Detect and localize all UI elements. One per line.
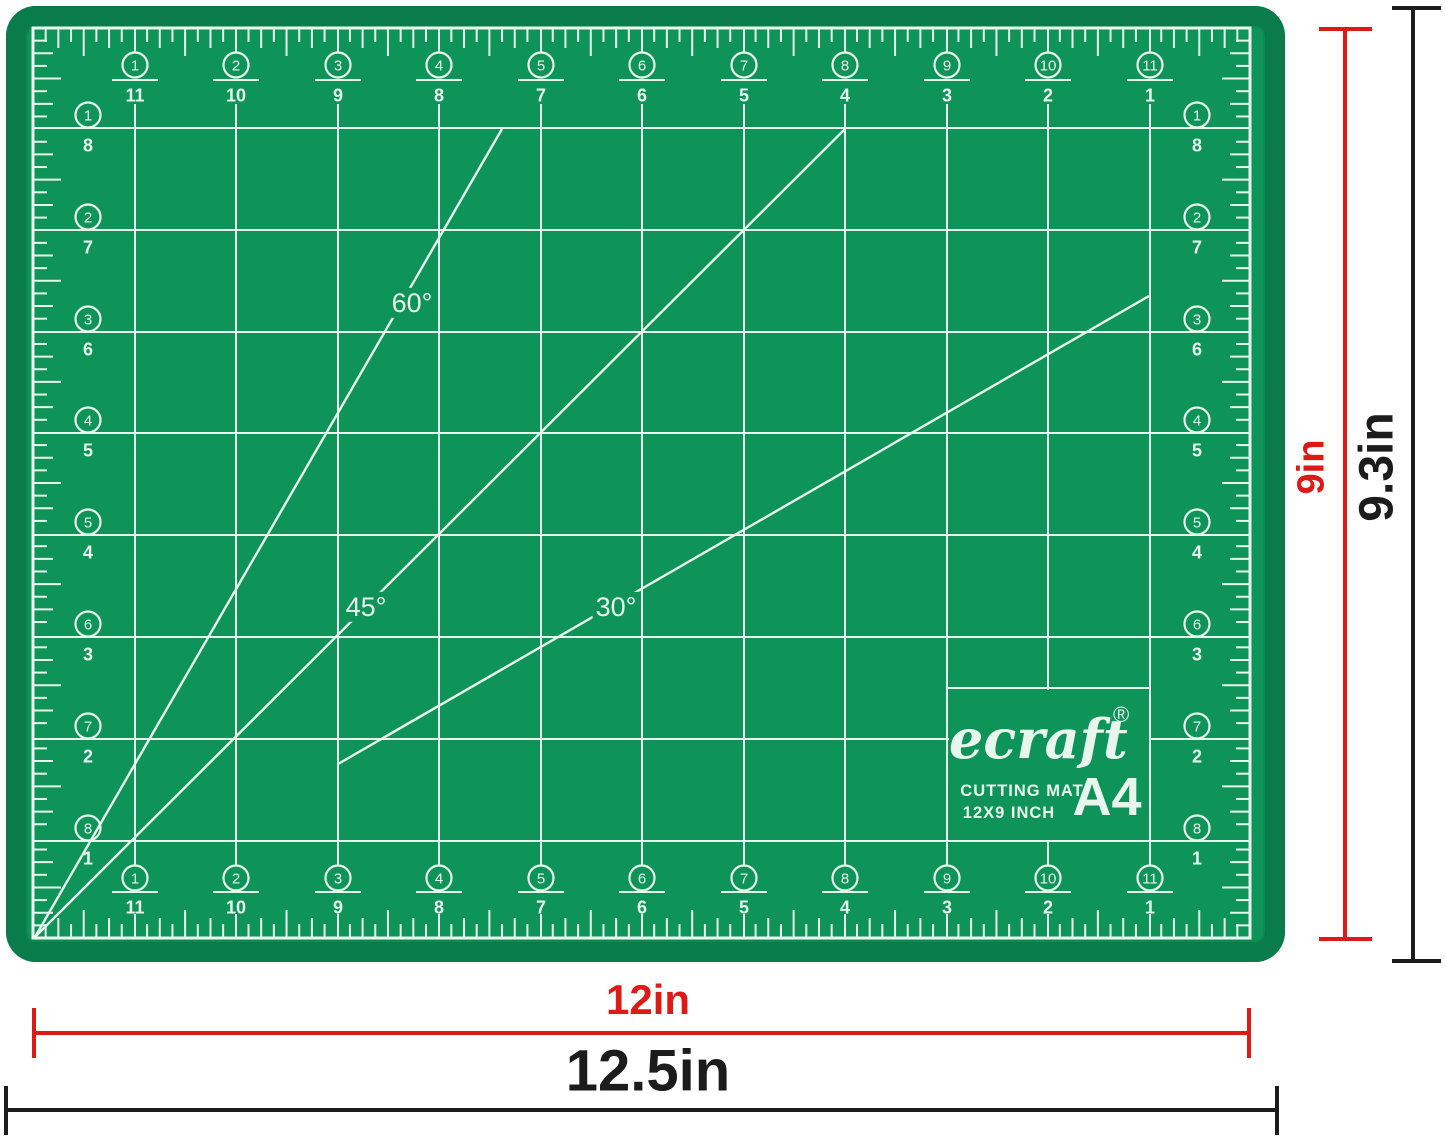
svg-text:7: 7 xyxy=(536,85,546,105)
svg-text:4: 4 xyxy=(84,412,92,429)
svg-text:4: 4 xyxy=(435,870,443,887)
top-ruler-labels: 11121039485766758493102111 xyxy=(112,53,1173,129)
registered-trademark-icon: ® xyxy=(1113,702,1129,728)
svg-text:2: 2 xyxy=(1192,746,1202,766)
svg-text:7: 7 xyxy=(84,718,92,735)
svg-text:10: 10 xyxy=(1040,57,1057,74)
svg-text:10: 10 xyxy=(226,85,246,105)
svg-text:5: 5 xyxy=(1193,514,1201,531)
svg-text:10: 10 xyxy=(226,897,246,917)
svg-text:3: 3 xyxy=(1193,311,1201,328)
svg-text:5: 5 xyxy=(739,897,749,917)
grid-width-label: 12in xyxy=(606,976,690,1024)
svg-text:8: 8 xyxy=(841,870,849,887)
svg-text:8: 8 xyxy=(434,85,444,105)
svg-text:8: 8 xyxy=(83,135,93,155)
svg-text:8: 8 xyxy=(84,820,92,837)
svg-text:7: 7 xyxy=(1192,237,1202,257)
svg-text:5: 5 xyxy=(83,440,93,460)
svg-text:4: 4 xyxy=(1193,412,1201,429)
svg-text:8: 8 xyxy=(1192,135,1202,155)
svg-text:3: 3 xyxy=(83,644,93,664)
svg-text:11: 11 xyxy=(125,897,144,917)
svg-text:6: 6 xyxy=(84,616,92,633)
total-height-label: 9.3in xyxy=(1350,412,1405,521)
svg-text:7: 7 xyxy=(83,237,93,257)
svg-text:1: 1 xyxy=(1193,107,1201,124)
angle-label-60: 60° xyxy=(389,288,436,318)
svg-text:8: 8 xyxy=(1193,820,1201,837)
svg-text:2: 2 xyxy=(83,746,93,766)
svg-text:5: 5 xyxy=(84,514,92,531)
svg-text:9: 9 xyxy=(333,897,343,917)
svg-text:2: 2 xyxy=(232,870,240,887)
left-ruler-labels: 1827364554637281 xyxy=(76,103,101,869)
total-width-label: 12.5in xyxy=(566,1038,730,1105)
svg-text:3: 3 xyxy=(1192,644,1202,664)
svg-text:2: 2 xyxy=(84,209,92,226)
svg-text:6: 6 xyxy=(638,870,646,887)
logo-a4-badge: A4 xyxy=(1067,770,1147,824)
svg-text:7: 7 xyxy=(740,870,748,887)
svg-text:4: 4 xyxy=(840,85,850,105)
svg-text:6: 6 xyxy=(637,85,647,105)
svg-text:3: 3 xyxy=(84,311,92,328)
svg-text:5: 5 xyxy=(739,85,749,105)
svg-text:3: 3 xyxy=(942,85,952,105)
svg-text:11: 11 xyxy=(125,85,144,105)
logo-size-inches: 12X9 INCH xyxy=(949,804,1069,823)
svg-text:4: 4 xyxy=(1192,542,1202,562)
logo-area: ecraft ® CUTTING MAT 12X9 INCH A4 xyxy=(949,690,1149,840)
svg-text:6: 6 xyxy=(637,897,647,917)
svg-text:3: 3 xyxy=(942,897,952,917)
svg-text:1: 1 xyxy=(1192,848,1202,868)
svg-text:8: 8 xyxy=(434,897,444,917)
svg-text:7: 7 xyxy=(740,57,748,74)
mat-grid-overlay: 1112103948576675849310211111121039485766… xyxy=(0,0,1445,1138)
svg-text:11: 11 xyxy=(1142,870,1158,887)
svg-text:9: 9 xyxy=(943,870,951,887)
svg-text:9: 9 xyxy=(333,85,343,105)
bottom-ruler-labels: 11121039485766758493102111 xyxy=(112,841,1173,917)
svg-text:4: 4 xyxy=(435,57,443,74)
angle-label-30: 30° xyxy=(593,592,640,622)
svg-text:1: 1 xyxy=(131,870,139,887)
svg-text:6: 6 xyxy=(638,57,646,74)
svg-text:1: 1 xyxy=(1145,85,1155,105)
svg-text:3: 3 xyxy=(334,57,342,74)
svg-text:10: 10 xyxy=(1040,870,1057,887)
svg-text:7: 7 xyxy=(1193,718,1201,735)
svg-text:3: 3 xyxy=(334,870,342,887)
svg-text:6: 6 xyxy=(1193,616,1201,633)
svg-text:4: 4 xyxy=(840,897,850,917)
svg-text:6: 6 xyxy=(1192,339,1202,359)
svg-text:8: 8 xyxy=(841,57,849,74)
grid-height-label: 9in xyxy=(1291,440,1334,495)
svg-text:5: 5 xyxy=(1192,440,1202,460)
svg-text:1: 1 xyxy=(84,107,92,124)
svg-text:7: 7 xyxy=(536,897,546,917)
svg-text:9: 9 xyxy=(943,57,951,74)
svg-text:6: 6 xyxy=(83,339,93,359)
svg-text:11: 11 xyxy=(1142,57,1158,74)
svg-text:2: 2 xyxy=(1043,897,1053,917)
svg-text:2: 2 xyxy=(1193,209,1201,226)
angle-label-45: 45° xyxy=(343,592,390,622)
svg-text:1: 1 xyxy=(1145,897,1155,917)
svg-text:5: 5 xyxy=(537,870,545,887)
svg-text:2: 2 xyxy=(1043,85,1053,105)
right-ruler-labels: 1827364554637281 xyxy=(1185,103,1210,869)
svg-text:4: 4 xyxy=(83,542,93,562)
svg-text:2: 2 xyxy=(232,57,240,74)
product-dimension-figure: 1112103948576675849310211111121039485766… xyxy=(0,0,1445,1138)
brand-logo: ecraft xyxy=(949,712,1124,766)
svg-text:5: 5 xyxy=(537,57,545,74)
svg-text:1: 1 xyxy=(131,57,139,74)
